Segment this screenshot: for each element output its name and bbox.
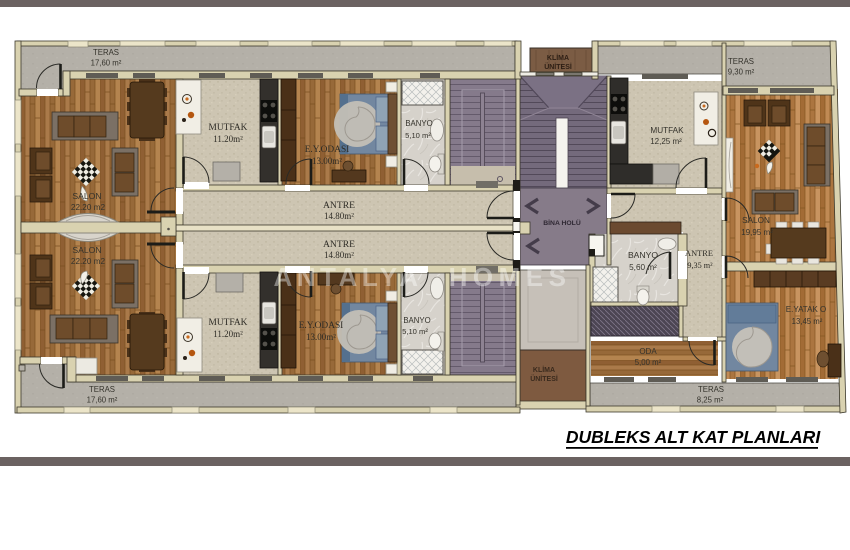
svg-text:DUBLEKS ALT KAT PLANLARI: DUBLEKS ALT KAT PLANLARI [566, 427, 822, 447]
svg-text:SALON: SALON [72, 191, 101, 201]
svg-text:9,35 m²: 9,35 m² [687, 261, 713, 270]
svg-text:TERAS: TERAS [698, 385, 724, 394]
svg-text:MUTFAK: MUTFAK [650, 126, 684, 135]
svg-text:22.20 m2: 22.20 m2 [71, 257, 106, 266]
svg-text:11.20m²: 11.20m² [213, 134, 243, 144]
svg-text:19,95 m²: 19,95 m² [741, 228, 773, 237]
svg-text:ANTRE: ANTRE [323, 200, 355, 211]
svg-text:MUTFAK: MUTFAK [209, 123, 248, 133]
svg-text:22.20 m2: 22.20 m2 [71, 203, 106, 212]
svg-text:11.20m²: 11.20m² [213, 329, 243, 339]
svg-text:ANTRE: ANTRE [323, 239, 355, 250]
svg-text:BANYO: BANYO [405, 119, 432, 128]
svg-text:KLİMA: KLİMA [533, 366, 555, 374]
svg-text:E.YATAK O: E.YATAK O [786, 305, 826, 314]
svg-text:SALON: SALON [742, 216, 770, 225]
svg-text:5,10 m²: 5,10 m² [405, 131, 431, 140]
svg-text:KLİMA: KLİMA [547, 54, 569, 62]
svg-text:BİNA HOLÜ: BİNA HOLÜ [543, 218, 581, 227]
svg-text:5,60 m²: 5,60 m² [629, 263, 657, 272]
svg-text:E.Y.ODASI: E.Y.ODASI [299, 321, 344, 331]
svg-text:BANYO: BANYO [403, 316, 430, 325]
svg-text:HOMES: HOMES [449, 262, 572, 292]
svg-text:13,45 m²: 13,45 m² [792, 317, 823, 326]
svg-text:14.80m²: 14.80m² [324, 211, 354, 221]
svg-text:13.00m²: 13.00m² [312, 156, 342, 166]
svg-text:12,25 m²: 12,25 m² [650, 137, 682, 146]
svg-text:ANTRE: ANTRE [685, 249, 713, 258]
svg-text:5,10 m²: 5,10 m² [402, 327, 428, 336]
svg-text:MUTFAK: MUTFAK [209, 318, 248, 328]
svg-text:E.Y.ODASI: E.Y.ODASI [305, 145, 350, 155]
svg-text:17,60 m²: 17,60 m² [91, 59, 122, 68]
svg-text:5,00 m²: 5,00 m² [635, 358, 662, 367]
svg-text:TERAS: TERAS [728, 57, 754, 66]
svg-text:13.00m²: 13.00m² [306, 332, 336, 342]
svg-text:TERAS: TERAS [89, 385, 115, 394]
svg-text:9,30 m²: 9,30 m² [728, 68, 755, 77]
svg-text:SALON: SALON [72, 245, 101, 255]
svg-text:BANYO: BANYO [628, 250, 658, 260]
svg-text:ÜNİTESİ: ÜNİTESİ [544, 62, 572, 71]
svg-text:TERAS: TERAS [93, 48, 119, 57]
svg-text:8,25 m²: 8,25 m² [697, 396, 724, 405]
svg-text:14.80m²: 14.80m² [324, 250, 354, 260]
svg-text:ÜNİTESİ: ÜNİTESİ [530, 374, 558, 383]
svg-text:17,60 m²: 17,60 m² [87, 396, 118, 405]
svg-text:ANTALYA: ANTALYA [273, 262, 422, 292]
svg-text:ODA: ODA [639, 347, 657, 356]
